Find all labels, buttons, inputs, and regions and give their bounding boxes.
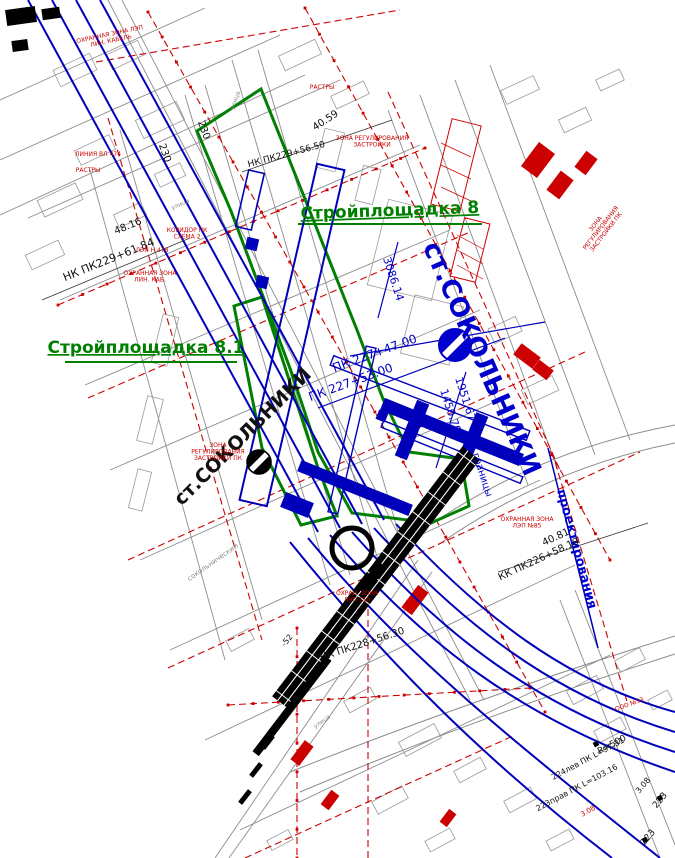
pk-223-a: 223 — [651, 791, 670, 811]
rastry-1: РАСТРЫ — [76, 167, 101, 174]
site-8-label: Стройплощадка 8 — [300, 198, 479, 224]
ooo-53: ООО №53 — [614, 696, 645, 713]
site-plan-page: Стройплощадка 8Стройплощадка 8.1ст.СОКОЛ… — [0, 0, 675, 858]
mark-minus52: -52 — [279, 632, 294, 648]
zone-reg-right: ЗОНАРЕГУЛИРОВАНИЯЗАСТРОЙКИ ПК — [577, 201, 626, 256]
labels-layer: Стройплощадка 8Стройплощадка 8.1ст.СОКОЛ… — [47, 24, 669, 847]
kk-pk226-58: КК ПК226+58.19 — [497, 536, 581, 583]
curve-223: 223прав ПК L=103.16 — [534, 762, 619, 813]
site-8-1-label: Стройплощадка 8.1 — [47, 338, 244, 358]
building-outlines — [25, 39, 672, 852]
street-ulitsa-1: улица — [229, 90, 242, 111]
nk-pk229-56: НК ПК229+56.50 — [247, 140, 327, 170]
rastry-2: РАСТРЫ — [310, 84, 335, 91]
street-ulitsa-2: улица — [170, 197, 191, 211]
sokolniki-site-plan-map: Стройплощадка 8Стройплощадка 8.1ст.СОКОЛ… — [0, 0, 675, 858]
metro-station-symbol-black — [242, 445, 276, 479]
mark-3-08: 3.08 — [634, 776, 652, 795]
street-ulitsa-3: улица — [312, 713, 332, 730]
zone-lep-topleft: ОХРАННАЯ ЗОНА ЛЭПЛИН. КАБЕЛЬ — [76, 24, 145, 51]
zone-reg-mid: ЗОНА РЕГУЛИРОВАНИЯЗАСТРОЙКИ — [336, 135, 409, 149]
zone-lep-110: ОХРАН. ЗОНАЛЭП 110 — [336, 590, 379, 604]
lep-478: ЛЭП Н 478 — [136, 247, 169, 254]
vl-474: ЛИНИЯ ВЛ 474 — [75, 151, 121, 158]
elev-40-59: 40.59 — [311, 108, 341, 133]
curve-224: 224лев ПК L=97.31 — [550, 736, 626, 782]
metro-tunnel-lines — [28, 0, 675, 858]
existing-rail-band — [5, 6, 663, 843]
zone-lep-85: ОХРАННАЯ ЗОНАЛЭП №85 — [501, 516, 555, 530]
elev-48-16: 48.16 — [113, 216, 144, 237]
zone-lin-kab: ОХРАННАЯ ЗОНАЛИН. КАБ. — [124, 270, 178, 284]
